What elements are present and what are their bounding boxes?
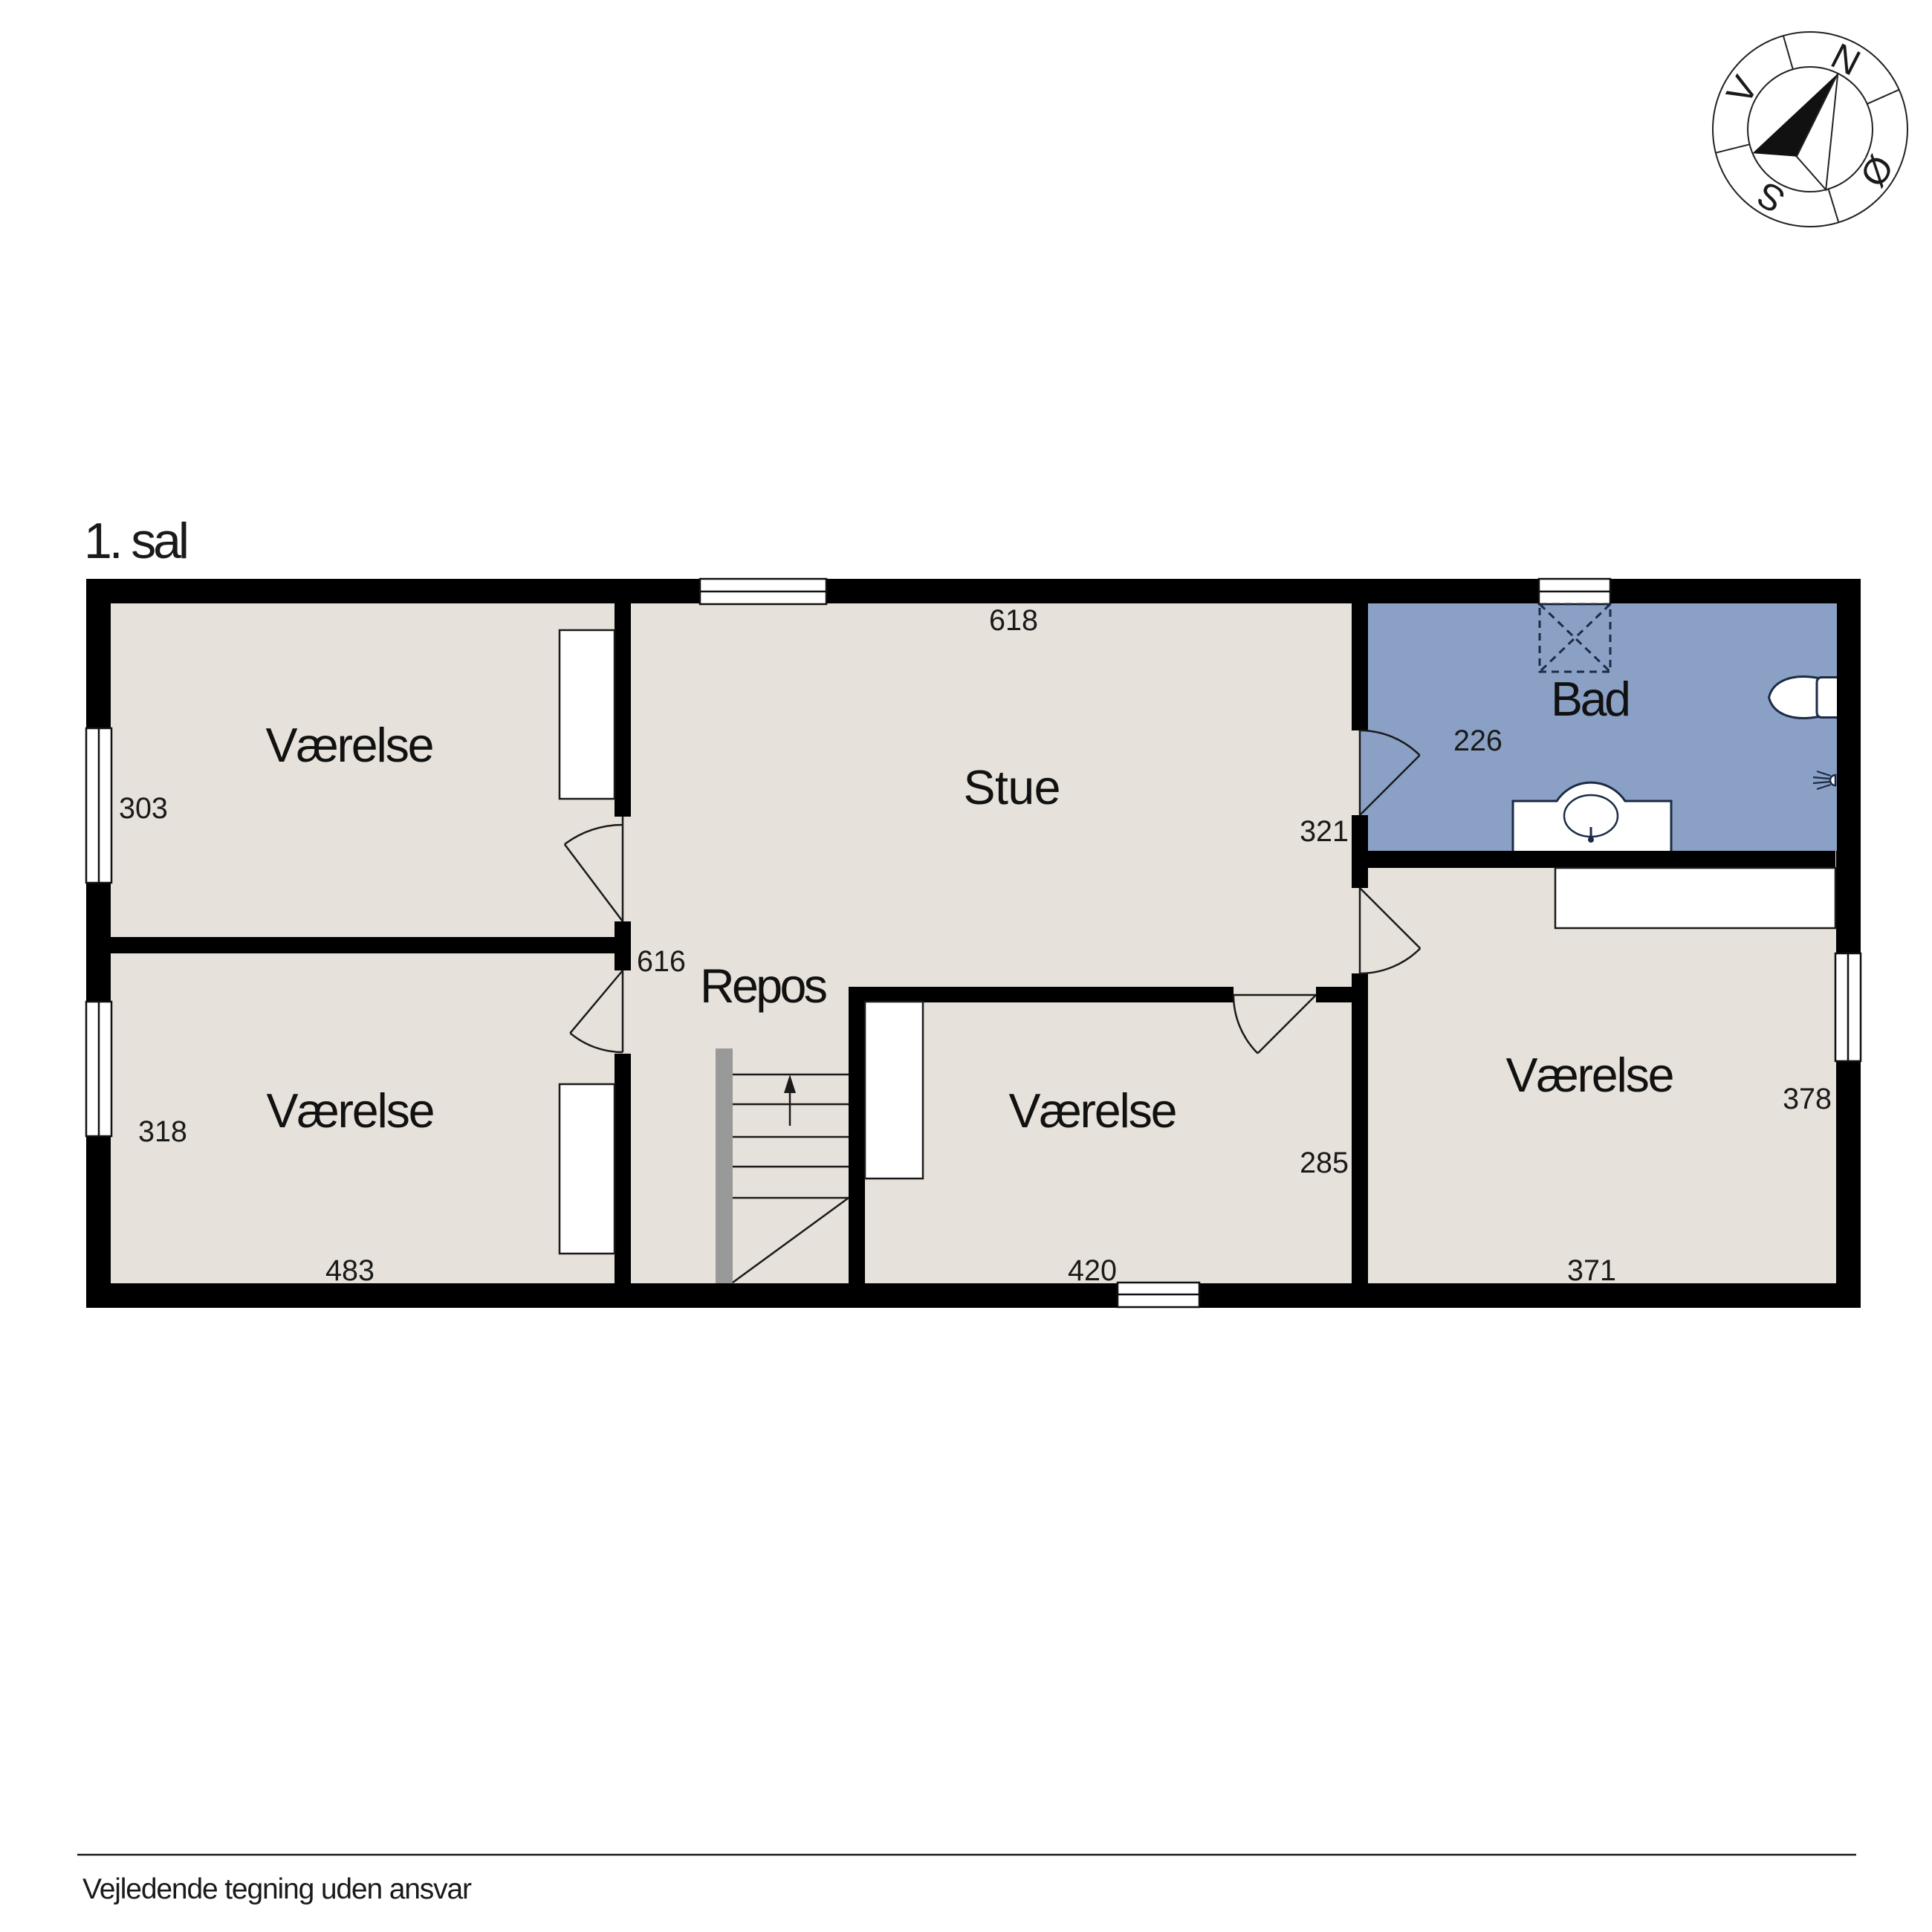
- svg-text:303: 303: [119, 792, 168, 825]
- svg-text:Værelse: Værelse: [1009, 1084, 1178, 1138]
- svg-text:Værelse: Værelse: [1506, 1048, 1675, 1102]
- svg-text:Repos: Repos: [700, 959, 828, 1013]
- svg-text:483: 483: [325, 1254, 375, 1287]
- svg-text:378: 378: [1783, 1083, 1832, 1115]
- svg-text:371: 371: [1567, 1254, 1616, 1287]
- svg-text:Værelse: Værelse: [267, 1084, 435, 1138]
- svg-text:420: 420: [1068, 1254, 1117, 1287]
- svg-text:Stue: Stue: [964, 761, 1061, 814]
- svg-text:616: 616: [637, 945, 686, 978]
- svg-text:285: 285: [1300, 1147, 1349, 1179]
- svg-text:Vejledende tegning uden ansvar: Vejledende tegning uden ansvar: [82, 1873, 472, 1905]
- svg-text:318: 318: [138, 1115, 187, 1148]
- svg-text:1. sal: 1. sal: [84, 513, 189, 569]
- svg-text:Bad: Bad: [1551, 672, 1631, 726]
- svg-text:226: 226: [1453, 724, 1503, 757]
- svg-text:Værelse: Værelse: [266, 719, 435, 772]
- svg-text:321: 321: [1300, 815, 1349, 848]
- svg-text:618: 618: [989, 604, 1038, 637]
